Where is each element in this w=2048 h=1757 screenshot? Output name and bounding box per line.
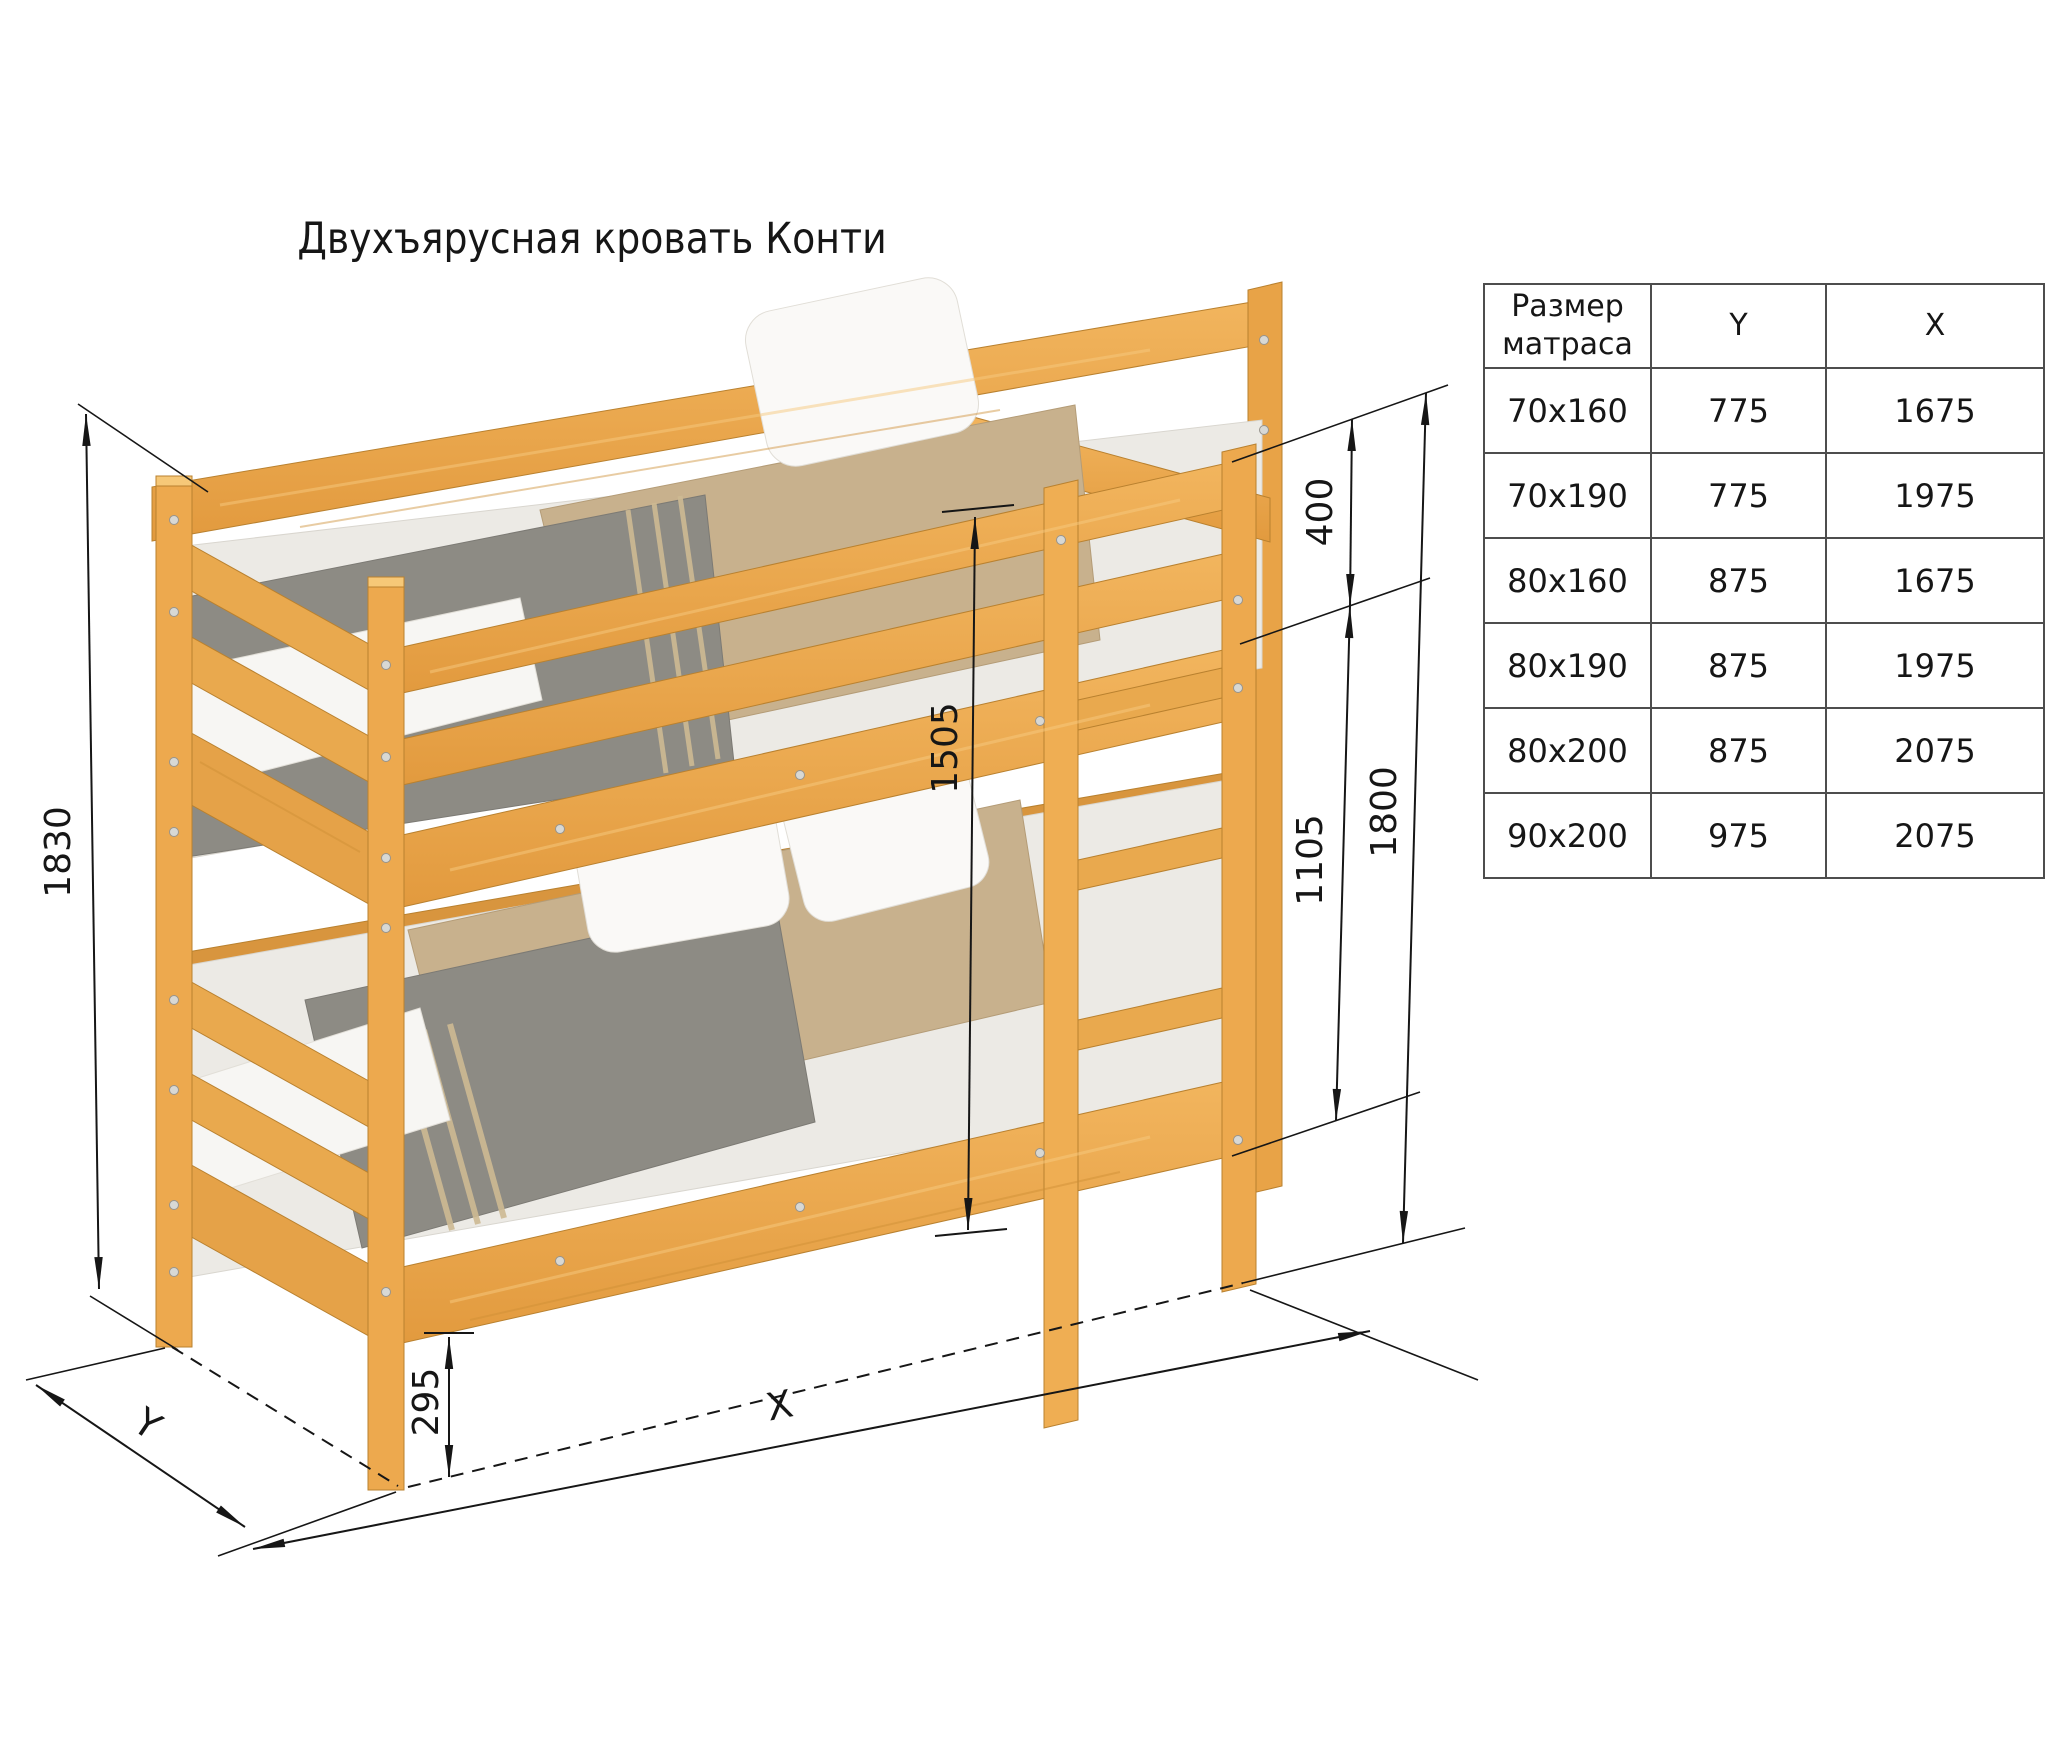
cell-size: 70x190 — [1484, 453, 1651, 538]
cell-size: 80x190 — [1484, 623, 1651, 708]
cell-x: 1675 — [1826, 538, 2044, 623]
cell-size: 70x160 — [1484, 368, 1651, 453]
screw — [1234, 684, 1243, 693]
extension-line — [26, 1348, 165, 1380]
cell-size: 80x160 — [1484, 538, 1651, 623]
header-mattress-size: Размер матраса — [1484, 284, 1651, 368]
screw — [170, 516, 179, 525]
extension-line — [218, 1492, 396, 1556]
screw — [382, 1288, 391, 1297]
cell-x: 2075 — [1826, 708, 2044, 793]
screw — [382, 661, 391, 670]
floor-extension-right — [1243, 1228, 1465, 1283]
table-row: 70x190 775 1975 — [1484, 453, 2044, 538]
label-clearance: 295 — [406, 1368, 447, 1437]
tick-mark — [935, 1229, 1007, 1236]
screw — [382, 924, 391, 933]
screw — [1260, 336, 1269, 345]
screw — [382, 854, 391, 863]
cell-x: 2075 — [1826, 793, 2044, 878]
screw — [1234, 1136, 1243, 1145]
label-under-frame: 1105 — [1290, 814, 1331, 906]
cell-x: 1675 — [1826, 368, 2044, 453]
cell-size: 90x200 — [1484, 793, 1651, 878]
label-length-axis: X — [763, 1381, 797, 1429]
screw — [796, 771, 805, 780]
screw — [170, 608, 179, 617]
cell-y: 975 — [1651, 793, 1826, 878]
table-row: 70x160 775 1675 — [1484, 368, 2044, 453]
cell-y: 775 — [1651, 368, 1826, 453]
table-row: 80x200 875 2075 — [1484, 708, 2044, 793]
ladder-stile — [1044, 480, 1078, 1428]
cell-size: 80x200 — [1484, 708, 1651, 793]
header-x: X — [1826, 284, 2044, 368]
floor-dashed-left-edge — [172, 1347, 398, 1486]
bunk-bed-illustration — [152, 272, 1282, 1490]
table-row: 80x190 875 1975 — [1484, 623, 2044, 708]
screw — [1036, 717, 1045, 726]
cell-y: 875 — [1651, 538, 1826, 623]
screw — [556, 1257, 565, 1266]
screw — [1036, 1149, 1045, 1158]
label-guard-height: 400 — [1300, 478, 1341, 547]
dim-line-height-1800 — [1403, 393, 1426, 1243]
table-row: 90x200 975 2075 — [1484, 793, 2044, 878]
label-guard-to-floor: 1800 — [1364, 766, 1405, 858]
label-inner-height: 1505 — [925, 702, 966, 794]
extension-line — [78, 404, 208, 492]
screw — [170, 1201, 179, 1210]
screw — [170, 828, 179, 837]
label-overall-height: 1830 — [38, 806, 79, 898]
screw — [1057, 536, 1066, 545]
screw — [796, 1203, 805, 1212]
table-header-row: Размер матраса Y X — [1484, 284, 2044, 368]
cell-y: 875 — [1651, 623, 1826, 708]
spec-sheet: Двухъярусная кровать Конти — [0, 0, 2048, 1757]
extension-line — [1250, 1290, 1478, 1380]
dim-line-overall-height — [86, 414, 99, 1289]
front-right-post — [1222, 444, 1256, 1292]
screw — [382, 753, 391, 762]
screw — [170, 1086, 179, 1095]
dim-line-under-1105 — [1336, 606, 1350, 1121]
cell-y: 875 — [1651, 708, 1826, 793]
cell-x: 1975 — [1826, 623, 2044, 708]
dim-line-depth-Y — [36, 1385, 245, 1527]
label-depth-axis: Y — [125, 1399, 170, 1449]
dim-line-guard-400 — [1350, 419, 1352, 606]
front-left-post — [368, 583, 404, 1490]
screw — [170, 1268, 179, 1277]
screw — [170, 996, 179, 1005]
dim-line-length-X — [253, 1331, 1370, 1549]
screw — [1234, 596, 1243, 605]
screw — [170, 758, 179, 767]
header-y: Y — [1651, 284, 1826, 368]
screw — [556, 825, 565, 834]
cell-y: 775 — [1651, 453, 1826, 538]
front-left-post-cap — [368, 577, 404, 587]
cell-x: 1975 — [1826, 453, 2044, 538]
screw — [1260, 426, 1269, 435]
table-row: 80x160 875 1675 — [1484, 538, 2044, 623]
mattress-size-table: Размер матраса Y X 70x160 775 1675 70x19… — [1483, 283, 2045, 879]
